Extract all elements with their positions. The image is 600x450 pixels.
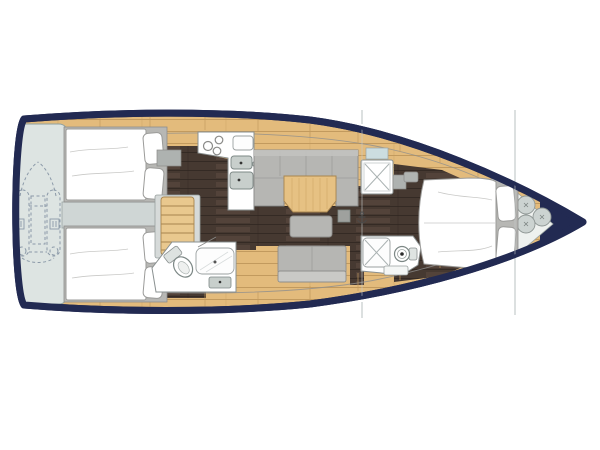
mattress — [66, 228, 146, 300]
yacht-floor-plan — [0, 0, 600, 450]
shower-window — [366, 148, 388, 159]
salon-sofa — [278, 246, 346, 282]
sink-cover — [233, 136, 253, 150]
fwd-head-toilet — [395, 247, 418, 262]
mattress — [66, 129, 146, 200]
aft-cabin-port — [64, 127, 167, 202]
fwd-head-vanity — [384, 266, 408, 275]
fwd-head — [361, 236, 421, 275]
salon-ottoman — [290, 216, 332, 237]
floor-plan-drawing — [0, 0, 600, 450]
hatch — [404, 172, 418, 182]
aft-cabin-starboard — [64, 226, 167, 302]
cockpit-walkway — [62, 202, 162, 228]
locker — [157, 150, 181, 166]
settee-backrest — [254, 150, 358, 156]
side-step — [338, 210, 350, 222]
